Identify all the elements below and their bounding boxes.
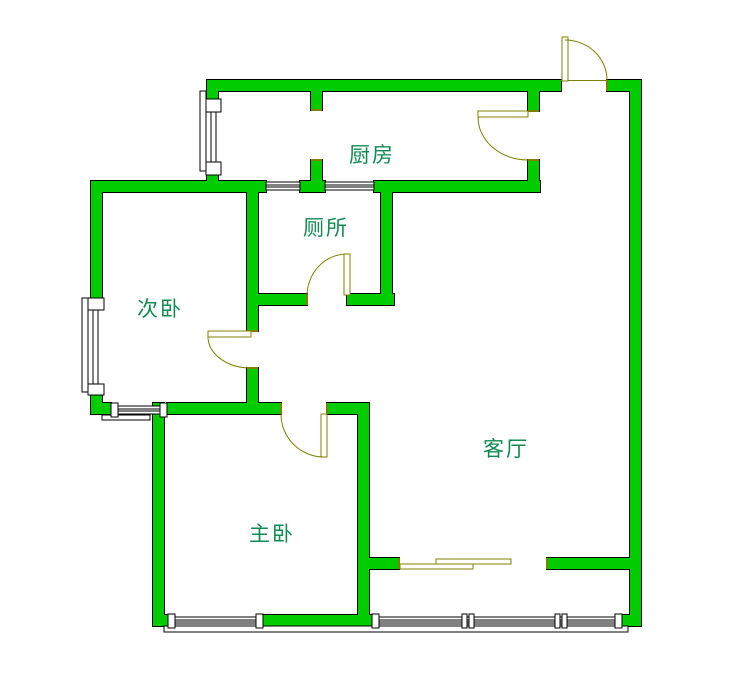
balcony-sliding-door-panel-lower	[400, 564, 473, 569]
toilet-transom-window-right-inner	[325, 185, 374, 187]
floorplan-drawing	[0, 0, 730, 693]
master-window-right-box	[256, 614, 263, 628]
entrance-jamb-right	[606, 80, 608, 91]
kitchen-divider-bottom	[311, 160, 322, 192]
bedroom2-bottom-window-left-box	[111, 403, 118, 417]
bedroom2-door-arc	[208, 337, 251, 368]
kitchen-divider-jamb-bottom	[311, 159, 322, 161]
living-window-mullion-2a	[555, 614, 560, 628]
room-label-toilet: 厕所	[303, 212, 349, 242]
toilet-right-wall	[381, 192, 392, 305]
entrance-door-arc	[565, 40, 607, 80]
bedroom2-window-top-box	[88, 298, 104, 310]
kitchen-bottom-wall	[374, 181, 540, 192]
room-label-secondary-bedroom: 次卧	[137, 293, 183, 323]
kitchen-left-wall-top	[207, 80, 218, 99]
master-window-left-box	[168, 614, 175, 628]
bedroom2-right-wall-top	[247, 181, 258, 331]
kitchen-window-bottom-box	[206, 162, 221, 175]
master-right-wall	[358, 403, 369, 626]
right-wall	[630, 80, 641, 626]
master-left-wall	[153, 403, 164, 626]
floorplan: 厨房 厕所 次卧 主卧 客厅	[0, 0, 730, 693]
kitchen-door-jamb-bottom	[528, 159, 539, 161]
master-door-jamb-right	[326, 403, 328, 414]
kitchen-door-jamb-top	[528, 110, 539, 112]
living-window-right-box	[615, 614, 622, 628]
entrance-door-leaf	[562, 37, 568, 81]
kitchen-window-glazing	[211, 112, 216, 162]
kitchen-right-wall-top	[528, 80, 539, 111]
room-label-kitchen: 厨房	[349, 139, 395, 169]
bedroom2-right-wall-bottom	[247, 368, 258, 414]
bedroom2-left-wall-top	[91, 181, 102, 299]
room-label-living-room: 客厅	[483, 433, 529, 463]
kitchen-divider-jamb-top	[311, 109, 322, 111]
living-window-mullion-1a	[462, 614, 467, 628]
master-top-wall-left	[167, 403, 281, 414]
top-wall	[207, 80, 561, 91]
kitchen-window-top-box	[206, 99, 221, 112]
living-window-left-box	[372, 614, 379, 628]
bottom-wall-center	[263, 615, 372, 626]
bedroom2-door-leaf	[208, 331, 251, 337]
sliding-door-jamb-right	[546, 558, 548, 569]
toilet-door-leaf	[344, 254, 350, 295]
living-window-glazing-inner	[379, 620, 615, 622]
master-door-leaf	[321, 414, 327, 457]
room-label-master-bedroom: 主卧	[249, 518, 295, 548]
bedroom2-left-wall-bottom	[91, 395, 102, 414]
master-window-glazing-inner	[175, 620, 256, 622]
bedroom2-window-outer-frame	[82, 298, 88, 392]
kitchen-divider-top	[311, 80, 322, 110]
door-jambs	[247, 80, 608, 569]
mid-wall-left	[91, 181, 266, 192]
bedroom2-window-bottom-box	[88, 384, 104, 395]
master-door-jamb-left	[280, 403, 282, 414]
kitchen-right-wall-bottom	[528, 160, 539, 192]
balcony-wall-right	[547, 558, 641, 569]
master-door-arc	[281, 414, 324, 457]
toilet-door-arc	[307, 254, 347, 296]
bedroom2-window-glazing	[93, 310, 98, 384]
kitchen-door-arc	[478, 117, 528, 160]
bedroom2-bottom-window-sill	[102, 415, 150, 420]
balcony-sliding-door-panel-upper	[436, 559, 511, 564]
toilet-transom-window-left-inner	[266, 185, 300, 187]
kitchen-window-outer-frame	[200, 91, 206, 171]
kitchen-left-wall-bottom	[207, 175, 218, 192]
living-window-mullion-2b	[562, 614, 567, 628]
bedroom2-bottom-window-right-box	[160, 403, 167, 417]
kitchen-door-leaf	[478, 111, 528, 117]
bedroom2-bottom-window-glazing-inner	[118, 409, 160, 411]
living-window-mullion-1b	[469, 614, 474, 628]
